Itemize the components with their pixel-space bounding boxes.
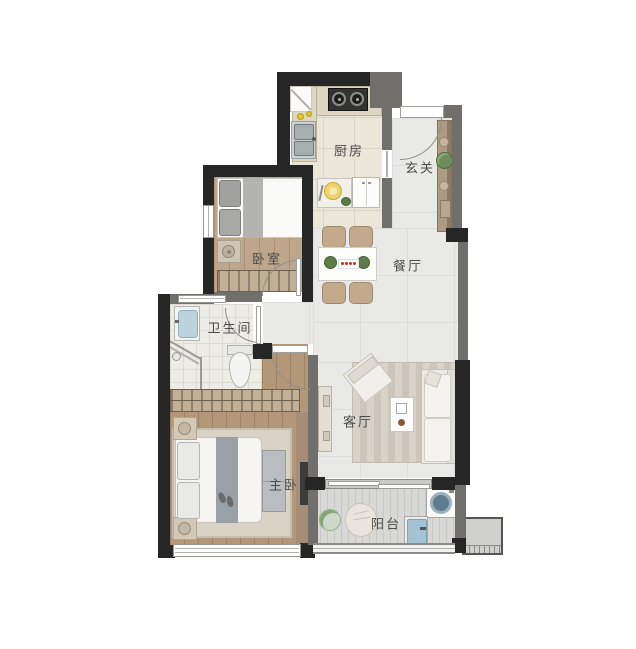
bathroom-vanity [174,306,200,341]
wall [452,105,462,228]
window-line [175,548,299,549]
bathroom-door-leaf [256,306,261,344]
window [173,544,301,557]
dining-chair [349,282,373,304]
decor-bowl-icon [439,181,449,191]
shower-partition [200,357,202,390]
wall [432,477,455,490]
wall [446,228,468,242]
room-label-bathroom: 卫生间 [207,318,252,337]
decor-bowl-icon [439,137,449,147]
master-door-leaf [272,345,308,353]
sofa [421,369,458,464]
floor-drain-icon [172,352,181,361]
plant-icon [324,256,337,269]
wall [382,178,392,228]
cabinet-diagonal-line [291,89,312,110]
nightstand [217,240,241,263]
room-label-balcony: 阳台 [371,514,401,533]
room-label-bedroom: 卧室 [252,249,282,268]
wall [253,343,272,359]
sofa-cushion [424,418,451,462]
tv-console [318,386,332,452]
entry-door-threshold [400,106,444,118]
dining-chair [349,226,373,248]
window-line [208,206,209,237]
refrigerator [352,177,380,208]
wall [455,485,466,543]
room-label-entry: 玄关 [405,158,435,177]
kitchen-corner-cabinet [290,86,312,112]
plant-icon [319,509,341,531]
decor-icon [398,419,405,426]
wall [203,165,313,177]
sink-icon [178,310,198,338]
wall [305,477,325,490]
dining-chair [322,282,346,304]
wall [302,165,313,302]
wall [444,105,462,118]
pillow [177,442,200,480]
mop-basin [404,516,428,545]
wall [203,238,214,302]
dining-chair [322,226,346,248]
wall [458,242,468,362]
plant-icon [436,152,453,169]
pillow [177,482,200,519]
window-line [175,552,299,553]
wall [203,165,214,205]
lamp-icon [178,522,191,535]
room-label-master: 主卧 [269,475,299,494]
decor-tray [440,200,451,218]
sliding-door [325,479,432,489]
washer-drum-icon [430,492,452,514]
room-label-kitchen: 厨房 [334,141,364,160]
vegetable-icon [341,197,351,206]
nightstand [173,417,197,440]
lemon-icon [306,111,312,117]
wall [382,86,392,150]
nightstand [173,517,197,540]
table-centerpiece [338,259,359,269]
bed-blanket [243,178,263,238]
burner-center [356,98,359,101]
wall [158,294,170,558]
faucet-icon [420,527,426,530]
lemon-icon [297,113,304,120]
room-label-living: 客厅 [343,412,373,431]
ac-platform [462,517,503,555]
window-line [180,298,224,299]
bed-runner [216,437,238,523]
wall [277,72,290,165]
hallway-floor [262,302,313,344]
stove [328,88,368,111]
lamp-icon [178,422,191,435]
faucet-icon [175,320,179,323]
floor-plan: 厨房 玄关 卧室 餐厅 卫生间 客厅 主卧 阳台 [0,0,636,649]
sink-basin [294,124,314,140]
wall [277,72,372,86]
master-wardrobe [170,389,300,412]
window [178,295,226,303]
coffee-table [390,397,414,432]
pillow [219,180,241,207]
faucet-icon [312,137,316,141]
balcony-railing [313,543,455,554]
cutting-board [324,182,342,200]
kitchen-sink [291,121,316,159]
burner-center [338,98,341,101]
pillow [219,209,241,236]
sink-basin [294,141,314,156]
washing-machine [426,487,457,518]
room-label-dining: 餐厅 [393,256,423,275]
bedroom-door-leaf [296,258,301,296]
kitchen-door-opening [382,150,392,178]
wall [455,360,470,485]
